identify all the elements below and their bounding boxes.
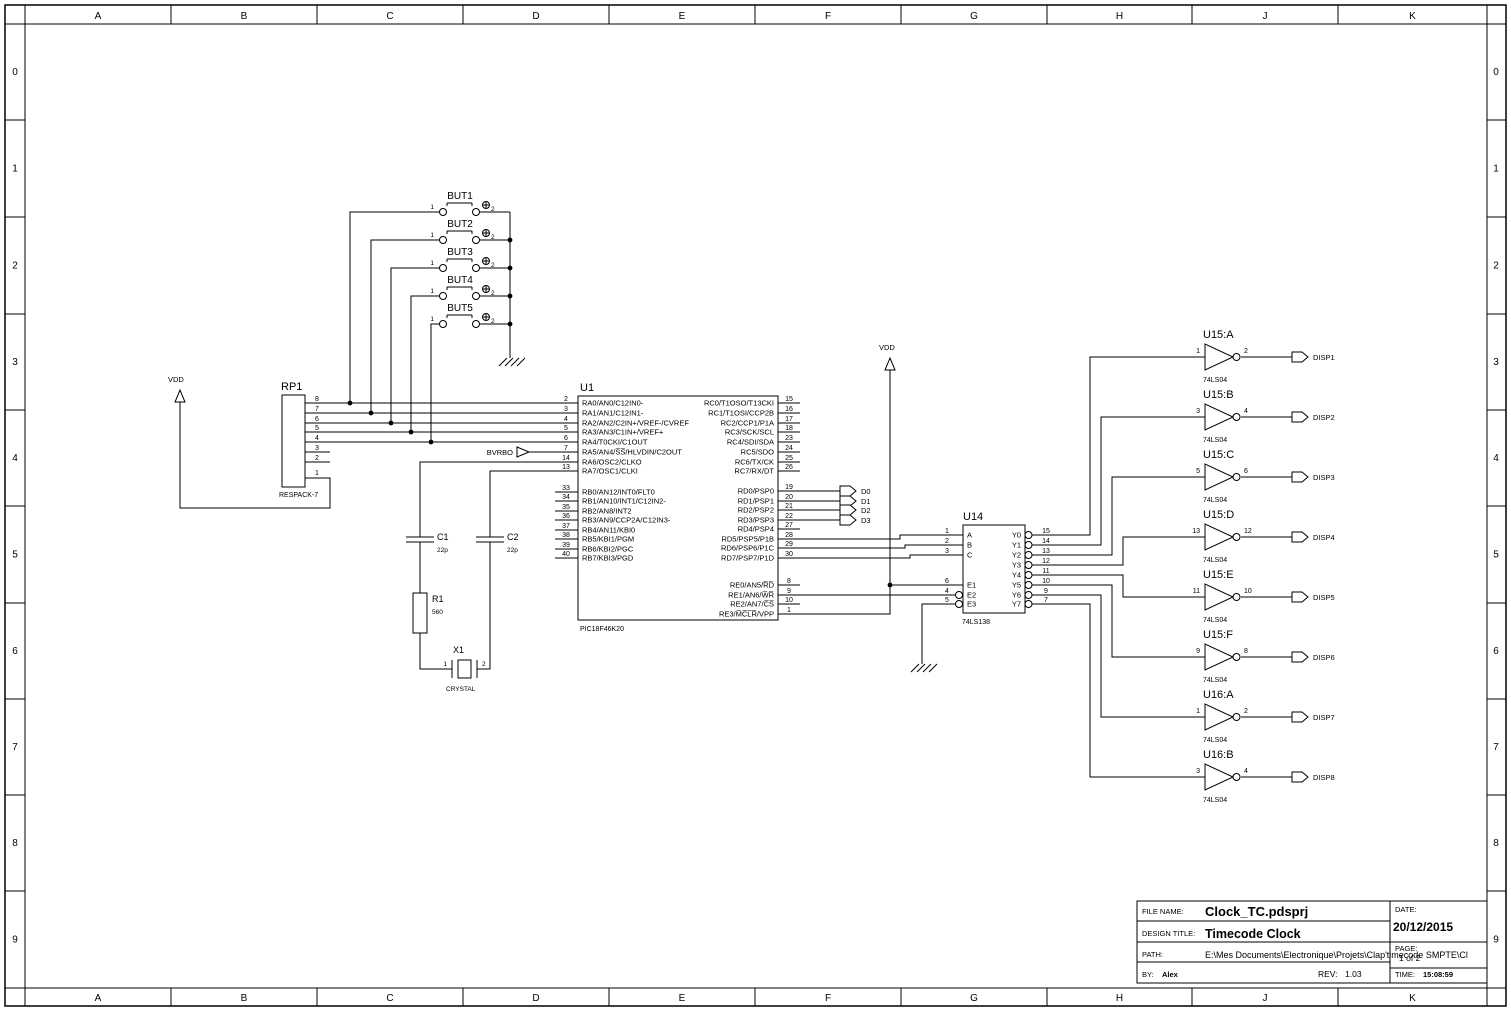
inverter-triangle-icon[interactable] <box>1205 524 1233 550</box>
wire[interactable] <box>1032 575 1205 597</box>
pin-name: RC1/T1OSI/CCP2B <box>708 409 774 418</box>
wire[interactable] <box>420 462 578 537</box>
pin-name: Y2 <box>1012 551 1021 560</box>
net-label: D0 <box>861 487 871 496</box>
data-tag-arrow-icon[interactable] <box>840 486 856 496</box>
inverter-gate[interactable]: U15:A74LS0412DISP1 <box>1196 329 1335 384</box>
component-value: 74LS04 <box>1203 557 1227 564</box>
pin-number: 4 <box>564 416 568 423</box>
wire[interactable] <box>431 324 439 442</box>
wire[interactable] <box>1032 604 1205 777</box>
component-ref: BUT1 <box>447 191 473 202</box>
pin-name: Y5 <box>1012 581 1021 590</box>
pin-number: 8 <box>315 396 319 403</box>
invert-bubble-icon <box>956 601 963 608</box>
pin-number: 3 <box>1196 768 1200 775</box>
mcu-u1-pic18f46k20[interactable]: U1PIC18F46K202RA0/AN0/C12IN0-3RA1/AN1/C1… <box>555 382 800 633</box>
junction-dot <box>369 411 374 416</box>
time: 15:08:59 <box>1423 970 1453 979</box>
grid-col-label: B <box>241 993 248 1004</box>
grid-row-label: 4 <box>12 453 18 464</box>
net-label: VDD <box>879 343 895 352</box>
grid-row-label: 1 <box>12 164 18 175</box>
pin-number: 11 <box>1193 588 1200 595</box>
pin-number: 6 <box>945 578 949 585</box>
component-value: 74LS04 <box>1203 737 1227 744</box>
pin-name: A <box>967 531 972 540</box>
pin-name: RE3/M̅C̅L̅R̅/VPP <box>719 610 774 619</box>
disp-tag-arrow-icon[interactable] <box>1292 772 1308 782</box>
component-value: 74LS138 <box>962 619 990 626</box>
pin-number: 1 <box>430 260 434 267</box>
grid-col-label: D <box>532 993 539 1004</box>
pin-number: 1 <box>443 661 447 668</box>
inverter-triangle-icon[interactable] <box>1205 704 1233 730</box>
grid-row-label: 2 <box>1493 261 1499 272</box>
component-ref: R1 <box>432 594 444 604</box>
resistor-body[interactable] <box>413 593 427 633</box>
pin-number: 34 <box>562 494 570 501</box>
field-label: REV: <box>1318 969 1338 979</box>
pin-number: 35 <box>562 504 570 511</box>
invert-bubble-icon <box>1233 714 1240 721</box>
invert-bubble-icon <box>1025 592 1032 599</box>
pin-number: 13 <box>1192 528 1200 535</box>
wire[interactable] <box>477 542 490 669</box>
component-ref: BUT5 <box>447 303 473 314</box>
pin-number: 1 <box>1196 708 1200 715</box>
pin-name: RA2/AN2/C2IN+/VREF-/CVREF <box>582 419 689 428</box>
grid-col-label: K <box>1409 993 1416 1004</box>
inverter-triangle-icon[interactable] <box>1205 464 1233 490</box>
button-terminal <box>473 265 480 272</box>
component-ref: BUT2 <box>447 219 473 230</box>
resistor-pack-rp1[interactable]: RP1RESPACK-787654321 <box>279 381 319 499</box>
pin-number: 5 <box>564 425 568 432</box>
pin-number: 1 <box>1196 348 1200 355</box>
schematic-sheet: AABBCCDDEEFFGGHHJJKK00112233445566778899… <box>0 0 1511 1011</box>
component-ref: U15:B <box>1203 389 1234 401</box>
net-label: D2 <box>861 506 871 515</box>
pin-number: 10 <box>1244 588 1252 595</box>
inverter-gate[interactable]: U15:D74LS041312DISP4 <box>1192 509 1334 564</box>
pin-number: 7 <box>1044 597 1048 604</box>
pin-name: RD6/PSP6/P1C <box>721 544 775 553</box>
component-ref: U15:A <box>1203 329 1234 341</box>
ground-icon <box>499 358 525 366</box>
pin-name: Y3 <box>1012 561 1021 570</box>
wire[interactable] <box>1032 357 1205 535</box>
grid-row-label: 9 <box>1493 935 1499 946</box>
pin-number: 4 <box>945 588 949 595</box>
net-label: DISP6 <box>1313 653 1335 662</box>
pin-name: Y1 <box>1012 541 1021 550</box>
pin-name: RA5/AN4/S̅S̅/HLVDIN/C2OUT <box>582 448 682 457</box>
wire[interactable] <box>1032 477 1205 555</box>
invert-bubble-icon <box>1025 552 1032 559</box>
component-ref: U1 <box>580 382 594 394</box>
pin-number: 6 <box>315 416 319 423</box>
author: Alex <box>1162 970 1179 979</box>
pin-name: RD3/PSP3 <box>738 516 774 525</box>
pin-number: 5 <box>315 425 319 432</box>
grid-col-label: G <box>970 993 978 1004</box>
field-label: PATH: <box>1142 950 1163 959</box>
pin-number: 18 <box>785 425 793 432</box>
pin-number: 2 <box>491 234 495 241</box>
wire[interactable] <box>350 212 439 403</box>
pin-number: 1 <box>430 204 434 211</box>
wire[interactable] <box>1032 417 1205 545</box>
pin-number: 29 <box>785 541 793 548</box>
grid-col-label: B <box>241 11 248 22</box>
grid-row-label: 9 <box>12 935 18 946</box>
component-ref: U15:D <box>1203 509 1234 521</box>
pin-number: 14 <box>562 455 570 462</box>
grid-col-label: A <box>95 11 102 22</box>
component-ref: U15:E <box>1203 569 1234 581</box>
pin-name: C <box>967 551 973 560</box>
inverter-gate[interactable]: U15:B74LS0434DISP2 <box>1196 389 1335 444</box>
pin-name: RB5/KBI1/PGM <box>582 535 634 544</box>
pin-name: RA1/AN1/C12IN1- <box>582 409 644 418</box>
wire[interactable] <box>800 585 890 614</box>
grid-col-label: A <box>95 993 102 1004</box>
pin-number: 26 <box>785 464 793 471</box>
vdd-arrow-icon <box>175 390 185 402</box>
pin-name: RE0/AN5/R̅D̅ <box>730 581 775 590</box>
pin-number: 37 <box>562 523 570 530</box>
pin-name: RB0/AN12/INT0/FLT0 <box>582 488 655 497</box>
grid-row-label: 6 <box>12 646 18 657</box>
junction-dot <box>348 401 353 406</box>
wire[interactable] <box>1032 595 1205 717</box>
pin-name: RD2/PSP2 <box>738 506 774 515</box>
pin-name: E3 <box>967 600 976 609</box>
wire[interactable] <box>922 604 955 664</box>
invert-bubble-icon <box>1233 654 1240 661</box>
pin-name: E1 <box>967 581 976 590</box>
pin-number: 13 <box>562 464 570 471</box>
pin-number: 5 <box>1196 468 1200 475</box>
pin-number: 30 <box>785 551 793 558</box>
pin-name: Y0 <box>1012 531 1021 540</box>
pin-number: 2 <box>491 262 495 269</box>
grid-col-label: D <box>532 11 539 22</box>
junction-dot <box>429 440 434 445</box>
disp-tag-arrow-icon[interactable] <box>1292 532 1308 542</box>
pin-number: 4 <box>1244 768 1248 775</box>
pin-name: Y7 <box>1012 600 1021 609</box>
pin-number: 3 <box>945 548 949 555</box>
inverter-gate[interactable]: U16:B74LS0434DISP8 <box>1196 749 1335 804</box>
invert-bubble-icon <box>1233 474 1240 481</box>
component-ref: U16:B <box>1203 749 1234 761</box>
pin-name: RE2/AN7/C̅S̅ <box>730 600 774 609</box>
pin-number: 28 <box>785 532 793 539</box>
pin-number: 17 <box>785 416 793 423</box>
pin-number: 24 <box>785 445 793 452</box>
wire[interactable] <box>1032 537 1205 565</box>
pin-number: 2 <box>1244 708 1248 715</box>
rp1-body[interactable] <box>282 395 305 487</box>
pin-number: 3 <box>315 445 319 452</box>
grid-row-label: 8 <box>1493 838 1499 849</box>
field-label: PAGE: <box>1395 944 1417 953</box>
pin-number: 40 <box>562 551 570 558</box>
invert-bubble-icon <box>1025 601 1032 608</box>
component-value: 74LS04 <box>1203 497 1227 504</box>
disp-tag-arrow-icon[interactable] <box>1292 592 1308 602</box>
button-terminal <box>473 293 480 300</box>
field-label: DESIGN TITLE: <box>1142 929 1195 938</box>
pin-number: 22 <box>785 513 793 520</box>
net-label: D3 <box>861 516 871 525</box>
wire[interactable] <box>800 535 963 539</box>
pin-number: 15 <box>785 396 793 403</box>
grid-col-label: H <box>1116 11 1123 22</box>
inverter-triangle-icon[interactable] <box>1205 764 1233 790</box>
pin-number: 16 <box>785 406 793 413</box>
pin-number: 19 <box>785 484 793 491</box>
pin-number: 20 <box>785 494 793 501</box>
pin-number: 38 <box>562 532 570 539</box>
pin-number: 11 <box>1042 568 1049 575</box>
grid-col-label: K <box>1409 11 1416 22</box>
component-ref: BUT4 <box>447 275 473 286</box>
net-label: DISP8 <box>1313 773 1335 782</box>
grid-row-label: 0 <box>1493 67 1499 78</box>
pin-number: 6 <box>564 435 568 442</box>
grid-row-label: 1 <box>1493 164 1499 175</box>
design-title: Timecode Clock <box>1205 927 1301 941</box>
data-tag-arrow-icon[interactable] <box>840 515 856 525</box>
component-ref: C1 <box>437 532 449 542</box>
junction-dot <box>508 322 513 327</box>
component-ref: U14 <box>963 511 983 523</box>
pin-name: RB6/KBI2/PGC <box>582 545 634 554</box>
pin-number: 15 <box>1042 528 1050 535</box>
inverter-gate[interactable]: U15:E74LS041110DISP5 <box>1193 569 1335 624</box>
pin-number: 7 <box>564 445 568 452</box>
button-terminal <box>440 321 447 328</box>
pin-number: 10 <box>785 597 793 604</box>
button-terminal <box>473 321 480 328</box>
component-value: 74LS04 <box>1203 677 1227 684</box>
component-ref: U16:A <box>1203 689 1234 701</box>
pin-number: 2 <box>491 206 495 213</box>
data-tag-arrow-icon[interactable] <box>840 505 856 515</box>
file-path: E:\Mes Documents\Electronique\Projets\Cl… <box>1205 950 1468 960</box>
pin-name: RC2/CCP1/P1A <box>721 419 774 428</box>
pin-number: 27 <box>785 522 793 529</box>
component-value: CRYSTAL <box>446 686 476 693</box>
component-value: 74LS04 <box>1203 437 1227 444</box>
decoder-u14-74ls138[interactable]: U1474LS1381A2B3C6E14E25E315Y014Y113Y212Y… <box>935 511 1060 626</box>
component-value: 22p <box>507 547 518 554</box>
pin-name: RD1/PSP1 <box>738 497 774 506</box>
inverter-triangle-icon[interactable] <box>1205 644 1233 670</box>
invert-bubble-icon <box>1233 534 1240 541</box>
inverter-gates[interactable]: U15:A74LS0412DISP1U15:B74LS0434DISP2U15:… <box>1192 329 1334 804</box>
junction-dot <box>508 294 513 299</box>
pin-number: 2 <box>482 661 486 668</box>
grid-col-label: E <box>679 993 686 1004</box>
grid-row-label: 6 <box>1493 646 1499 657</box>
junction-dot <box>409 430 414 435</box>
net-label: BVRBO <box>487 448 513 457</box>
button-terminal <box>440 265 447 272</box>
pin-number: 13 <box>1042 548 1050 555</box>
component-value: PIC18F46K20 <box>580 626 624 633</box>
component-ref: U15:F <box>1203 629 1233 641</box>
pin-name: RA7/OSC1/CLKI <box>582 467 638 476</box>
ground-icon <box>911 664 937 672</box>
invert-bubble-icon <box>1025 532 1032 539</box>
pin-number: 9 <box>1196 648 1200 655</box>
grid-col-label: C <box>386 11 393 22</box>
pin-name: RA4/T0CKI/C1OUT <box>582 438 648 447</box>
pin-number: 4 <box>1244 408 1248 415</box>
disp-tag-arrow-icon[interactable] <box>1292 652 1308 662</box>
button-terminal <box>440 237 447 244</box>
grid-col-label: F <box>825 993 831 1004</box>
net-label: DISP5 <box>1313 593 1335 602</box>
pin-name: RE1/AN6/W̅R̅ <box>728 591 774 600</box>
grid-col-label: J <box>1263 993 1268 1004</box>
grid-row-label: 3 <box>1493 357 1499 368</box>
grid-col-label: E <box>679 11 686 22</box>
pin-name: RC6/TX/CK <box>735 458 774 467</box>
pin-name: RB1/AN10/INT1/C12IN2- <box>582 497 666 506</box>
pin-name: E2 <box>967 591 976 600</box>
button-terminal <box>473 209 480 216</box>
pin-number: 1 <box>430 232 434 239</box>
pin-name: RC4/SDI/SDA <box>727 438 774 447</box>
pin-name: RB4/AN11/KBI0 <box>582 526 635 535</box>
net-label: DISP1 <box>1313 353 1335 362</box>
input-tag-arrow-icon[interactable] <box>517 447 529 457</box>
revision: 1.03 <box>1345 969 1362 979</box>
grid-row-label: 5 <box>1493 550 1499 561</box>
grid-row-label: 2 <box>12 261 18 272</box>
pin-name: RC7/RX/DT <box>734 467 774 476</box>
pin-number: 8 <box>787 578 791 585</box>
pin-name: RD5/PSP5/P1B <box>721 535 774 544</box>
wire[interactable] <box>371 240 439 413</box>
grid-row-label: 7 <box>1493 742 1499 753</box>
wire[interactable] <box>1032 585 1205 657</box>
invert-bubble-icon <box>1025 562 1032 569</box>
net-label: DISP2 <box>1313 413 1335 422</box>
pin-name: RB7/KBI3/PGD <box>582 554 634 563</box>
pin-number: 10 <box>1042 578 1050 585</box>
pin-name: RC0/T1OSO/T13CKI <box>704 399 774 408</box>
disp-tag-arrow-icon[interactable] <box>1292 712 1308 722</box>
pin-number: 33 <box>562 485 570 492</box>
pin-number: 9 <box>1044 588 1048 595</box>
grid-row-label: 4 <box>1493 453 1499 464</box>
disp-tag-arrow-icon[interactable] <box>1292 412 1308 422</box>
inverter-gate[interactable]: U16:A74LS0412DISP7 <box>1196 689 1335 744</box>
inverter-triangle-icon[interactable] <box>1205 404 1233 430</box>
pin-number: 1 <box>315 470 319 477</box>
component-value: RESPACK-7 <box>279 492 318 499</box>
net-label: DISP3 <box>1313 473 1335 482</box>
pin-name: RD4/PSP4 <box>738 525 774 534</box>
pin-number: 3 <box>564 406 568 413</box>
component-value: 74LS04 <box>1203 617 1227 624</box>
net-label: VDD <box>168 375 184 384</box>
net-label: DISP7 <box>1313 713 1335 722</box>
pin-number: 39 <box>562 542 570 549</box>
invert-bubble-icon <box>1233 774 1240 781</box>
disp-tag-arrow-icon[interactable] <box>1292 472 1308 482</box>
field-label: DATE: <box>1395 905 1417 914</box>
button-terminal <box>440 293 447 300</box>
inverter-triangle-icon[interactable] <box>1205 344 1233 370</box>
component-ref: BUT3 <box>447 247 473 258</box>
push-buttons[interactable]: BUT112BUT212BUT312BUT412BUT512 <box>430 191 495 328</box>
date: 20/12/2015 <box>1393 920 1453 934</box>
pin-name: RA3/AN3/C1IN+/VREF+ <box>582 428 664 437</box>
component-value: 22p <box>437 547 448 554</box>
pin-number: 2 <box>564 396 568 403</box>
pin-name: RD7/PSP7/P1D <box>721 554 775 563</box>
grid-col-label: H <box>1116 993 1123 1004</box>
grid-row-label: 8 <box>12 838 18 849</box>
pin-number: 2 <box>945 538 949 545</box>
pin-number: 23 <box>785 435 793 442</box>
wire[interactable] <box>411 296 439 432</box>
component-value: 74LS04 <box>1203 797 1227 804</box>
invert-bubble-icon <box>956 592 963 599</box>
pin-name: Y4 <box>1012 571 1021 580</box>
field-label: FILE NAME: <box>1142 907 1184 916</box>
grid-row-label: 0 <box>12 67 18 78</box>
pin-number: 5 <box>945 597 949 604</box>
crystal-body[interactable] <box>458 660 471 678</box>
wire[interactable] <box>420 633 452 669</box>
pin-number: 12 <box>1244 528 1252 535</box>
junction-dot <box>389 421 394 426</box>
component-ref: RP1 <box>281 381 302 393</box>
junction-dot <box>888 583 893 588</box>
page-number: 1 of 2 <box>1399 953 1421 963</box>
junction-dot <box>508 238 513 243</box>
disp-tag-arrow-icon[interactable] <box>1292 352 1308 362</box>
title-block: FILE NAME:Clock_TC.pdsprjDESIGN TITLE:Ti… <box>1137 901 1487 983</box>
invert-bubble-icon <box>1025 582 1032 589</box>
pin-number: 1 <box>430 316 434 323</box>
net-label: DISP4 <box>1313 533 1335 542</box>
pin-name: RC5/SDO <box>741 448 775 457</box>
pin-number: 12 <box>1042 558 1050 565</box>
component-ref: X1 <box>453 645 464 655</box>
pin-number: 1 <box>945 528 949 535</box>
component-value: 74LS04 <box>1203 377 1227 384</box>
inverter-gate[interactable]: U15:F74LS0498DISP6 <box>1196 629 1335 684</box>
grid-col-label: G <box>970 11 978 22</box>
inverter-gate[interactable]: U15:C74LS0456DISP3 <box>1196 449 1335 504</box>
grid-row-label: 3 <box>12 357 18 368</box>
grid-col-label: F <box>825 11 831 22</box>
grid-col-label: C <box>386 993 393 1004</box>
pin-name: B <box>967 541 972 550</box>
button-terminal <box>440 209 447 216</box>
inverter-triangle-icon[interactable] <box>1205 584 1233 610</box>
pin-number: 8 <box>1244 648 1248 655</box>
